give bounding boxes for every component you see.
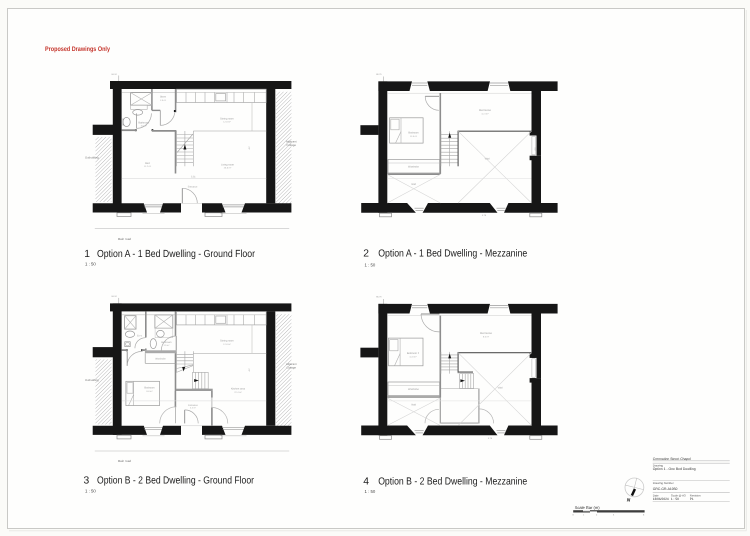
svg-text:Proposed Drawings Only: Proposed Drawings Only: [45, 46, 110, 53]
svg-text:Option A - 1 Bed Dwelling - M: Option A - 1 Bed Dwelling - Mezzanine: [378, 249, 527, 260]
svg-text:Option B - 2 Bed Dwelling - M: Option B - 2 Bed Dwelling - Mezzanine: [378, 477, 527, 488]
svg-text:Bedroom 2: Bedroom 2: [407, 352, 420, 355]
svg-text:1 : 50: 1 : 50: [671, 497, 679, 501]
svg-text:11.2 m²: 11.2 m²: [144, 165, 152, 168]
svg-text:Cottage: Cottage: [287, 144, 297, 147]
svg-text:4: 4: [363, 477, 369, 488]
svg-text:Dining room: Dining room: [220, 340, 233, 343]
svg-text:En-s: En-s: [137, 334, 143, 337]
svg-text:P1: P1: [690, 497, 694, 501]
svg-text:Entrance: Entrance: [188, 186, 198, 189]
svg-text:12.8 m²: 12.8 m²: [223, 343, 231, 346]
svg-text:Main road: Main road: [118, 459, 132, 463]
svg-text:86.79: 86.79: [376, 73, 382, 76]
svg-text:84.10: 84.10: [112, 73, 118, 76]
svg-text:Coronation Street Chapel: Coronation Street Chapel: [653, 457, 692, 461]
svg-text:1: 1: [84, 249, 90, 260]
svg-text:Main road: Main road: [118, 237, 132, 241]
svg-text:Void: Void: [485, 158, 490, 161]
svg-text:1 : 50: 1 : 50: [85, 262, 96, 267]
svg-text:Drawing Number: Drawing Number: [653, 481, 674, 485]
svg-text:Mezzanine: Mezzanine: [479, 109, 492, 112]
svg-text:11.8 m²: 11.8 m²: [409, 356, 417, 359]
svg-text:1.9 m²: 1.9 m²: [160, 99, 166, 102]
svg-text:86.79: 86.79: [376, 296, 382, 299]
svg-text:1 : 50: 1 : 50: [365, 489, 376, 494]
svg-text:Cottage: Cottage: [287, 366, 297, 369]
svg-text:Void: Void: [411, 403, 416, 406]
svg-text:Option B - 2 Bed Dwelling - Gr: Option B - 2 Bed Dwelling - Ground Floor: [97, 475, 254, 486]
svg-text:Outbuilding: Outbuilding: [85, 157, 99, 160]
svg-text:Entrance: Entrance: [188, 404, 198, 407]
svg-text:Bedroom: Bedroom: [144, 387, 154, 390]
svg-text:Wardrobe: Wardrobe: [408, 166, 419, 169]
svg-text:GRC-GR-A1050: GRC-GR-A1050: [653, 487, 678, 491]
svg-text:Option 1 - One Bed Dwelling: Option 1 - One Bed Dwelling: [653, 467, 696, 471]
svg-text:5.51: 5.51: [191, 176, 196, 179]
svg-text:2: 2: [363, 249, 369, 260]
svg-text:22.4 m²: 22.4 m²: [234, 391, 242, 394]
svg-text:N: N: [627, 498, 631, 504]
svg-text:11.4 m²: 11.4 m²: [481, 113, 489, 116]
svg-text:Kitchen area: Kitchen area: [231, 388, 246, 391]
svg-text:Mezzanine: Mezzanine: [480, 332, 493, 335]
svg-text:Bed: Bed: [145, 162, 150, 165]
svg-text:84.10: 84.10: [112, 295, 118, 298]
svg-text:9.5 m²: 9.5 m²: [483, 335, 489, 338]
svg-text:Bedroom: Bedroom: [408, 132, 418, 135]
svg-text:Scale Bar (m): Scale Bar (m): [575, 505, 601, 510]
svg-text:Void: Void: [498, 386, 503, 389]
svg-text:13/06/2024: 13/06/2024: [653, 497, 669, 501]
svg-text:3.3 m²: 3.3 m²: [190, 407, 196, 410]
svg-text:Store: Store: [160, 96, 167, 99]
svg-text:Living room: Living room: [221, 163, 234, 166]
svg-text:1 : 50: 1 : 50: [365, 263, 376, 268]
svg-text:Void: Void: [411, 183, 416, 186]
svg-text:11.8 m²: 11.8 m²: [410, 135, 418, 138]
svg-text:Wardrobe: Wardrobe: [408, 388, 419, 391]
svg-text:Outbuilding: Outbuilding: [85, 379, 99, 382]
svg-text:3.9 m²: 3.9 m²: [164, 344, 170, 347]
svg-text:Dining room: Dining room: [220, 117, 233, 120]
svg-text:28.0 m²: 28.0 m²: [224, 167, 232, 170]
svg-text:Option A - 1 Bed Dwelling - Gr: Option A - 1 Bed Dwelling - Ground Floor: [97, 249, 255, 260]
svg-text:9.8 m²: 9.8 m²: [146, 390, 152, 393]
svg-text:1 : 50: 1 : 50: [85, 488, 96, 493]
svg-text:Wardrobe: Wardrobe: [155, 357, 166, 360]
svg-text:12.8 m²: 12.8 m²: [223, 121, 231, 124]
svg-text:3: 3: [84, 475, 90, 486]
